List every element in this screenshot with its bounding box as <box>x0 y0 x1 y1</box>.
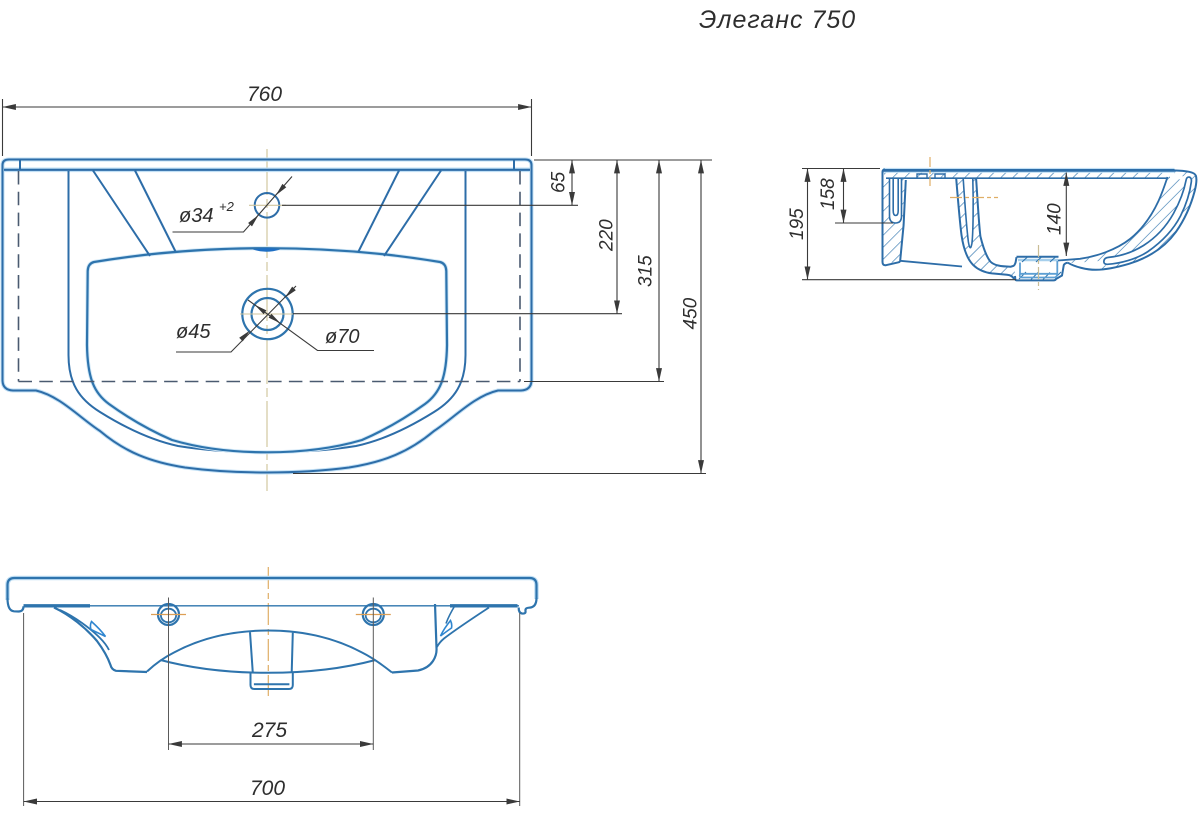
svg-text:315: 315 <box>636 255 657 287</box>
svg-text:65: 65 <box>549 171 570 193</box>
svg-text:700: 700 <box>250 777 285 800</box>
svg-text:195: 195 <box>787 208 808 240</box>
svg-text:+2: +2 <box>219 199 235 214</box>
svg-text:275: 275 <box>251 719 287 742</box>
svg-text:760: 760 <box>247 83 282 106</box>
svg-text:450: 450 <box>681 297 702 329</box>
svg-text:Элеганс 750: Элеганс 750 <box>699 6 856 34</box>
svg-text:140: 140 <box>1045 203 1066 235</box>
svg-text:220: 220 <box>597 219 618 252</box>
svg-text:ø34: ø34 <box>179 205 213 227</box>
svg-text:158: 158 <box>818 178 839 210</box>
svg-text:ø70: ø70 <box>325 326 359 348</box>
svg-text:ø45: ø45 <box>176 321 211 343</box>
